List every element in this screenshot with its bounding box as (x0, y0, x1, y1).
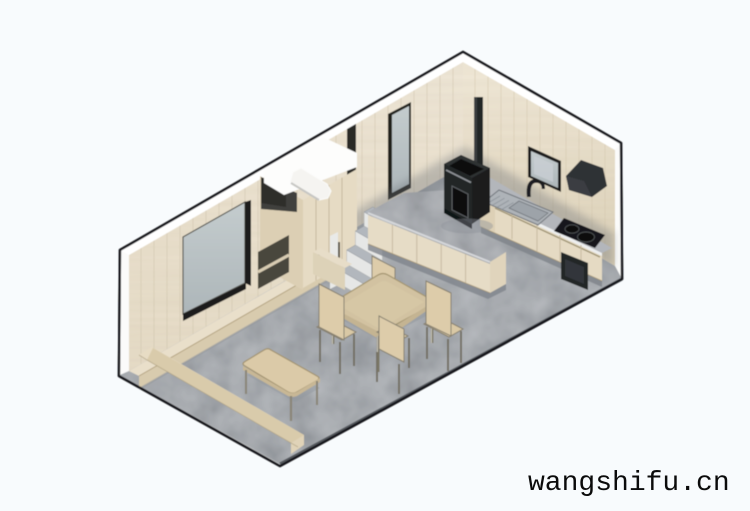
svg-text:wangshifu.cn: wangshifu.cn (528, 468, 730, 499)
